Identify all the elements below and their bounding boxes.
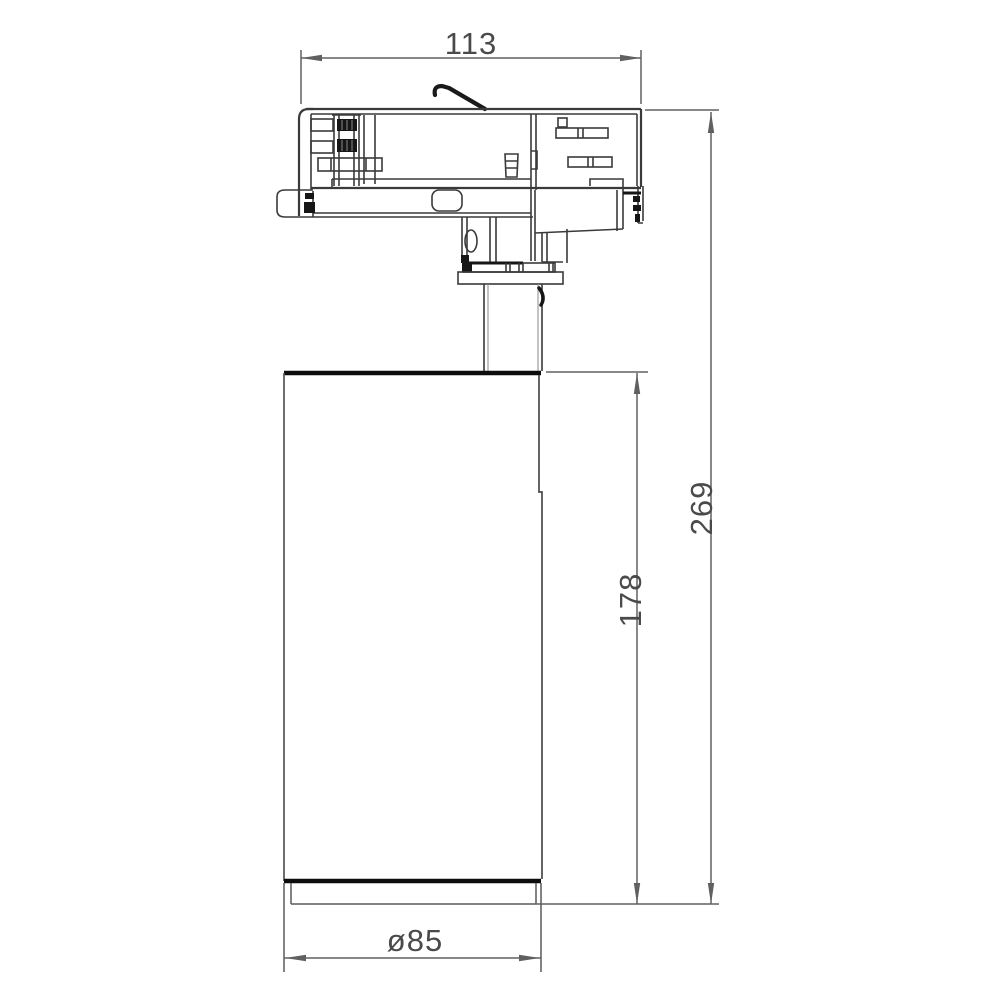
dim-label-height-body: 178 [613,573,648,628]
dim-height-body: 178 [546,372,648,904]
track-adapter [299,86,641,216]
technical-drawing: 113 269 178 ø85 [0,0,1000,1000]
dim-height-overall: 269 [536,110,719,904]
dim-diameter-body: ø85 [284,923,541,961]
dim-label-height-overall: 269 [684,481,719,536]
technical-drawing-page: 113 269 178 ø85 [0,0,1000,1000]
lamp-body [284,373,542,972]
mounting-bracket [277,179,643,284]
stem [484,284,543,371]
bezel [291,883,536,904]
dim-label-width-top: 113 [445,26,497,61]
dim-width-top: 113 [301,26,641,104]
release-lever [435,86,485,109]
flange [458,272,563,284]
dim-label-diameter-body: ø85 [387,923,443,958]
